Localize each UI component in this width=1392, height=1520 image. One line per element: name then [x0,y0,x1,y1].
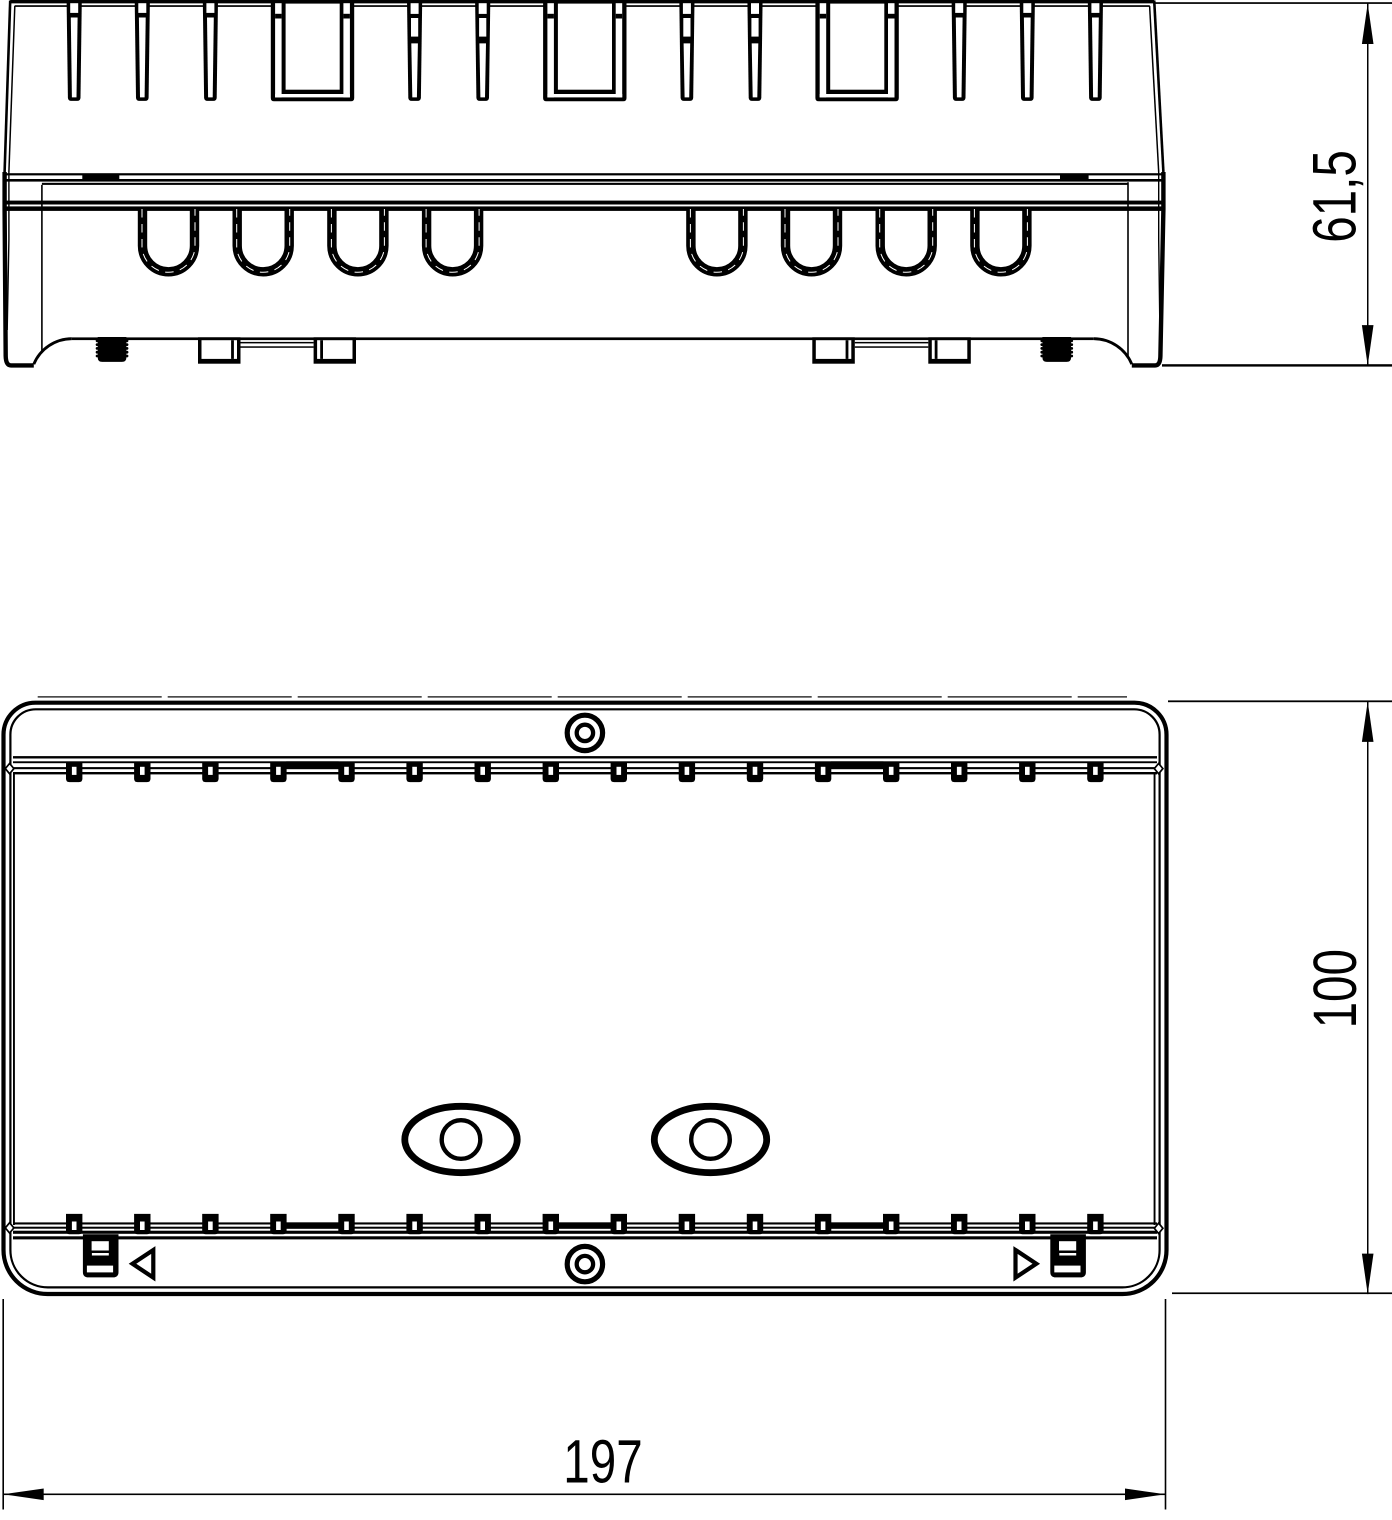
svg-text:61,5: 61,5 [1300,150,1369,243]
svg-text:197: 197 [563,1427,642,1496]
svg-text:100: 100 [1300,949,1369,1028]
